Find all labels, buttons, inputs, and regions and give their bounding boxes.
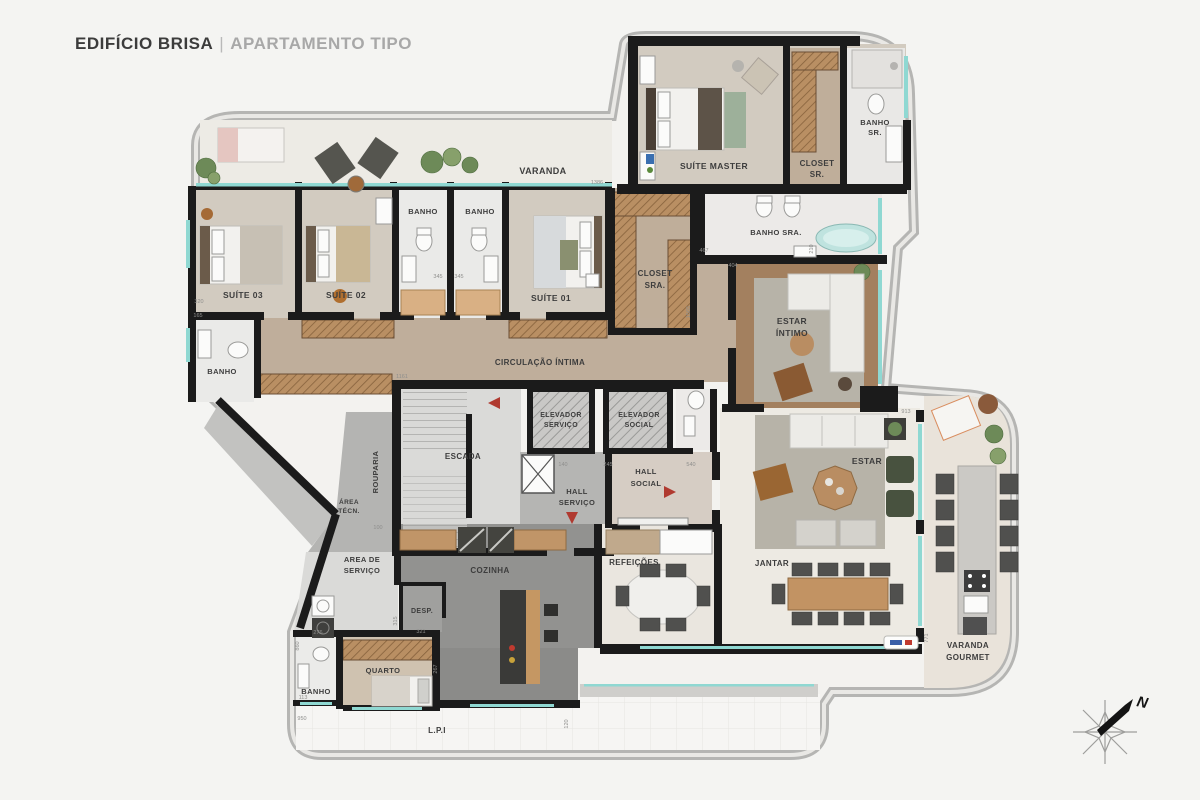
bed-quarto xyxy=(372,676,432,706)
label-estar: ESTAR xyxy=(852,456,882,466)
dim-label-18: 113 xyxy=(299,695,308,701)
elevator-social xyxy=(603,386,673,454)
dim-label-1: 1161 xyxy=(396,374,408,380)
dim-label-13: 210 xyxy=(809,244,815,253)
bed-suite-01 xyxy=(534,216,602,288)
elevator-servico xyxy=(527,386,595,454)
label-banho-s3: BANHO xyxy=(207,367,237,376)
label-banho-sr-2: SR. xyxy=(868,128,882,137)
label-area-serv-1: AREA DE xyxy=(344,555,380,564)
label-elev-serv-2: SERVIÇO xyxy=(544,422,578,429)
label-estar-intimo-1: ESTAR xyxy=(777,316,807,326)
label-banho-b: BANHO xyxy=(465,207,495,216)
label-varanda-g-1: VARANDA xyxy=(947,641,989,650)
label-varanda: VARANDA xyxy=(519,166,566,176)
label-estar-intimo-2: ÍNTIMO xyxy=(776,328,808,338)
dim-label-11: 913 xyxy=(901,409,910,415)
dim-label-22: 120 xyxy=(564,719,570,728)
label-jantar: JANTAR xyxy=(755,559,789,568)
room-circulacao-floor xyxy=(202,318,736,382)
compass-north-label: N xyxy=(1135,693,1150,712)
dim-label-0: 1386 xyxy=(591,180,603,186)
dim-label-8: 345 xyxy=(433,274,442,280)
dim-label-17: 276 xyxy=(313,630,322,636)
dim-label-15: 860 xyxy=(295,641,301,650)
ac-unit-marker xyxy=(646,154,654,164)
room-hall-social-floor xyxy=(612,452,712,528)
floor-plan-drawing: VARANDASUÍTE 03SUÍTE 02BANHOBANHOSUÍTE 0… xyxy=(0,0,1200,800)
label-area-tecn-2: TÉCN. xyxy=(338,506,360,515)
dim-label-7: 165 xyxy=(193,313,202,319)
machine-shaft xyxy=(522,455,554,493)
label-varanda-g-2: GOURMET xyxy=(946,653,990,662)
label-elev-soc-2: SOCIAL xyxy=(625,422,654,429)
dim-label-16: 950 xyxy=(297,716,306,722)
compass-rose: N xyxy=(1073,693,1150,764)
label-suite-01: SUÍTE 01 xyxy=(531,293,571,303)
label-hall-serv-1: HALL xyxy=(566,487,588,496)
dim-label-3: 245 xyxy=(603,462,612,468)
label-area-serv-2: SERVIÇO xyxy=(344,566,380,575)
label-circulacao: CIRCULAÇÃO ÍNTIMA xyxy=(495,358,585,367)
dim-label-14: 771 xyxy=(924,633,930,642)
label-hall-serv-2: SERVIÇO xyxy=(559,498,595,507)
label-closet-sr-2: SR. xyxy=(810,170,825,179)
hall-social-door xyxy=(618,518,688,525)
label-hall-soc-1: HALL xyxy=(635,467,657,476)
label-banho-sr-1: BANHO xyxy=(860,118,890,127)
dim-label-5: 100 xyxy=(373,525,382,531)
dim-label-10: 404 xyxy=(728,263,737,269)
label-elev-soc-1: ELEVADOR xyxy=(618,412,660,419)
label-closet-sr-1: CLOSET xyxy=(800,159,835,168)
label-desp: DESP. xyxy=(411,608,433,615)
dim-label-19: 315 xyxy=(393,616,399,625)
label-escada: ESCADA xyxy=(445,452,481,461)
label-suite-03: SUÍTE 03 xyxy=(223,290,263,300)
label-suite-02: SUÍTE 02 xyxy=(326,290,366,300)
dim-label-2: 140 xyxy=(558,462,567,468)
dim-label-6: 320 xyxy=(194,299,203,305)
label-hall-soc-2: SOCIAL xyxy=(631,479,662,488)
dim-label-21: 267 xyxy=(433,664,439,673)
label-elev-serv-1: ELEVADOR xyxy=(540,412,582,419)
label-refeicoes: REFEIÇÕES xyxy=(609,558,659,567)
floor-plan-page: EDIFÍCIO BRISA|APARTAMENTO TIPO xyxy=(0,0,1200,800)
label-lpi: L.P.I xyxy=(428,726,446,735)
label-closet-sra-2: SRA. xyxy=(645,281,666,290)
label-closet-sra-1: CLOSET xyxy=(638,269,673,278)
label-banho-a: BANHO xyxy=(408,207,438,216)
varanda-chaise xyxy=(218,128,284,162)
label-area-tecn-1: ÁREA xyxy=(339,497,359,506)
dim-label-12: 467 xyxy=(699,248,708,254)
dim-label-23: 1565 xyxy=(686,306,692,318)
label-cozinha: COZINHA xyxy=(470,566,509,575)
dim-label-9: 345 xyxy=(454,274,463,280)
label-quarto: QUARTO xyxy=(366,666,401,675)
label-suite-master: SUÍTE MASTER xyxy=(680,161,748,171)
dim-label-20: 321 xyxy=(416,629,425,635)
label-banho-sra: BANHO SRA. xyxy=(750,228,802,237)
stairs xyxy=(403,392,472,548)
dim-label-4: 540 xyxy=(686,462,695,468)
label-rouparia: ROUPARIA xyxy=(371,450,380,493)
